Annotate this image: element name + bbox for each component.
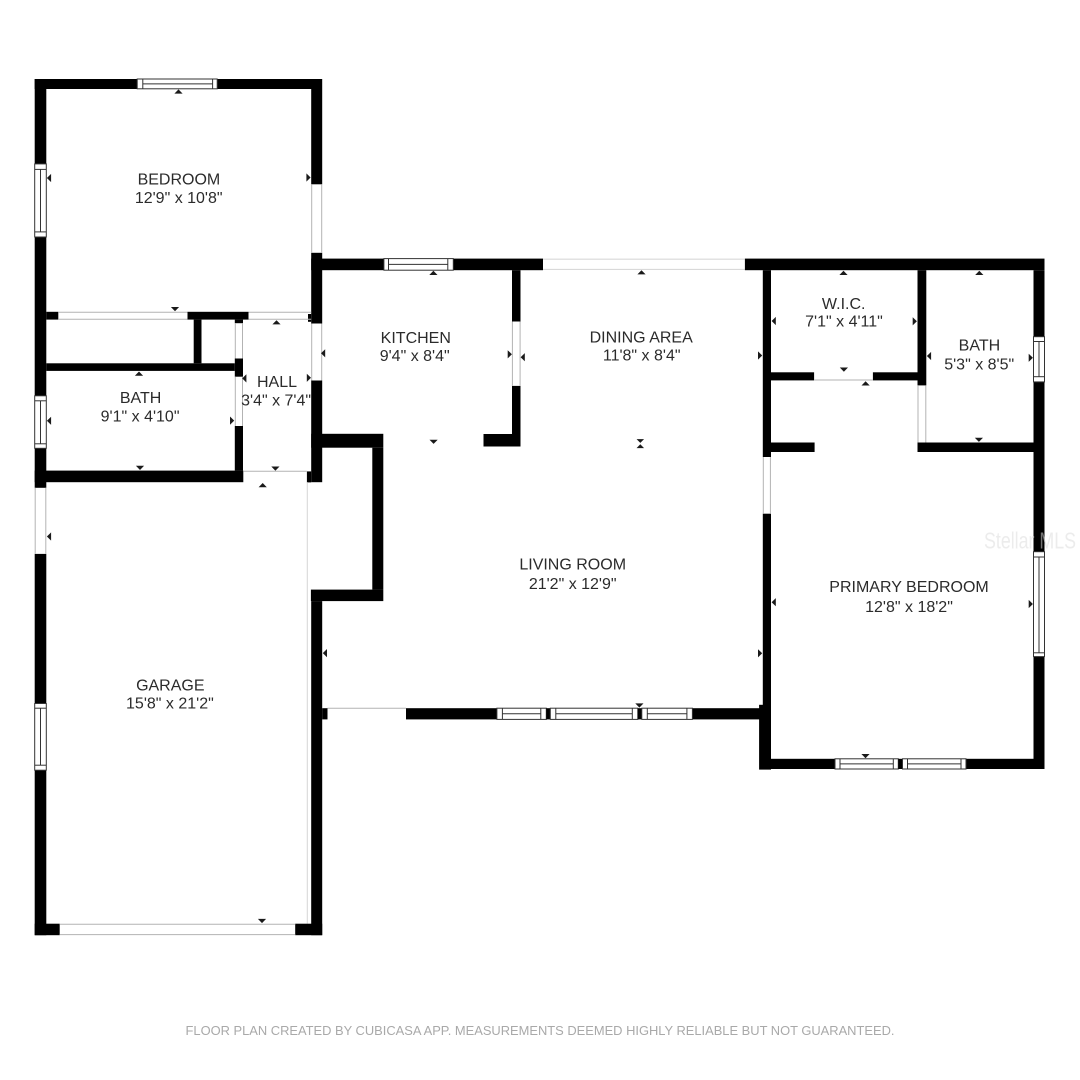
svg-text:5'3" x 8'5": 5'3" x 8'5" <box>944 357 1014 374</box>
svg-text:KITCHEN: KITCHEN <box>381 330 451 347</box>
svg-text:21'2" x 12'9": 21'2" x 12'9" <box>529 576 617 593</box>
svg-text:DINING AREA: DINING AREA <box>590 330 693 347</box>
svg-text:7'1" x 4'11": 7'1" x 4'11" <box>805 313 883 330</box>
svg-text:BATH: BATH <box>120 390 161 407</box>
svg-text:9'4" x 8'4": 9'4" x 8'4" <box>380 348 450 365</box>
svg-text:LIVING ROOM: LIVING ROOM <box>519 556 626 573</box>
svg-text:PRIMARY BEDROOM: PRIMARY BEDROOM <box>829 579 988 596</box>
svg-text:GARAGE: GARAGE <box>136 678 204 695</box>
svg-text:3'4" x 7'4": 3'4" x 7'4" <box>241 393 311 410</box>
svg-text:HALL: HALL <box>257 374 297 391</box>
svg-text:15'8" x 21'2": 15'8" x 21'2" <box>126 696 214 713</box>
svg-text:W.I.C.: W.I.C. <box>822 296 866 313</box>
svg-text:12'8" x 18'2": 12'8" x 18'2" <box>865 599 953 616</box>
svg-text:Stellar MLS: Stellar MLS <box>984 528 1076 554</box>
svg-text:BEDROOM: BEDROOM <box>138 172 221 189</box>
svg-text:FLOOR PLAN CREATED BY CUBICASA: FLOOR PLAN CREATED BY CUBICASA APP. MEAS… <box>186 1023 895 1038</box>
svg-text:12'9" x 10'8": 12'9" x 10'8" <box>135 190 223 207</box>
svg-text:BATH: BATH <box>959 337 1000 354</box>
svg-text:11'8" x 8'4": 11'8" x 8'4" <box>603 348 681 365</box>
svg-text:9'1" x 4'10": 9'1" x 4'10" <box>101 408 180 425</box>
